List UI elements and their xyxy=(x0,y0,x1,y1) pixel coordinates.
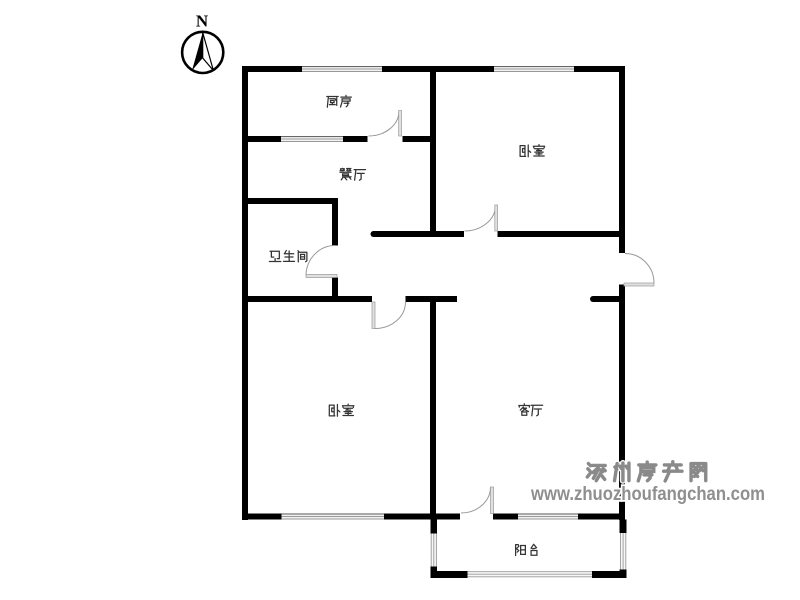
svg-text:www.zhuozhoufangchan.com: www.zhuozhoufangchan.com xyxy=(530,484,765,505)
svg-text:N: N xyxy=(196,12,209,31)
